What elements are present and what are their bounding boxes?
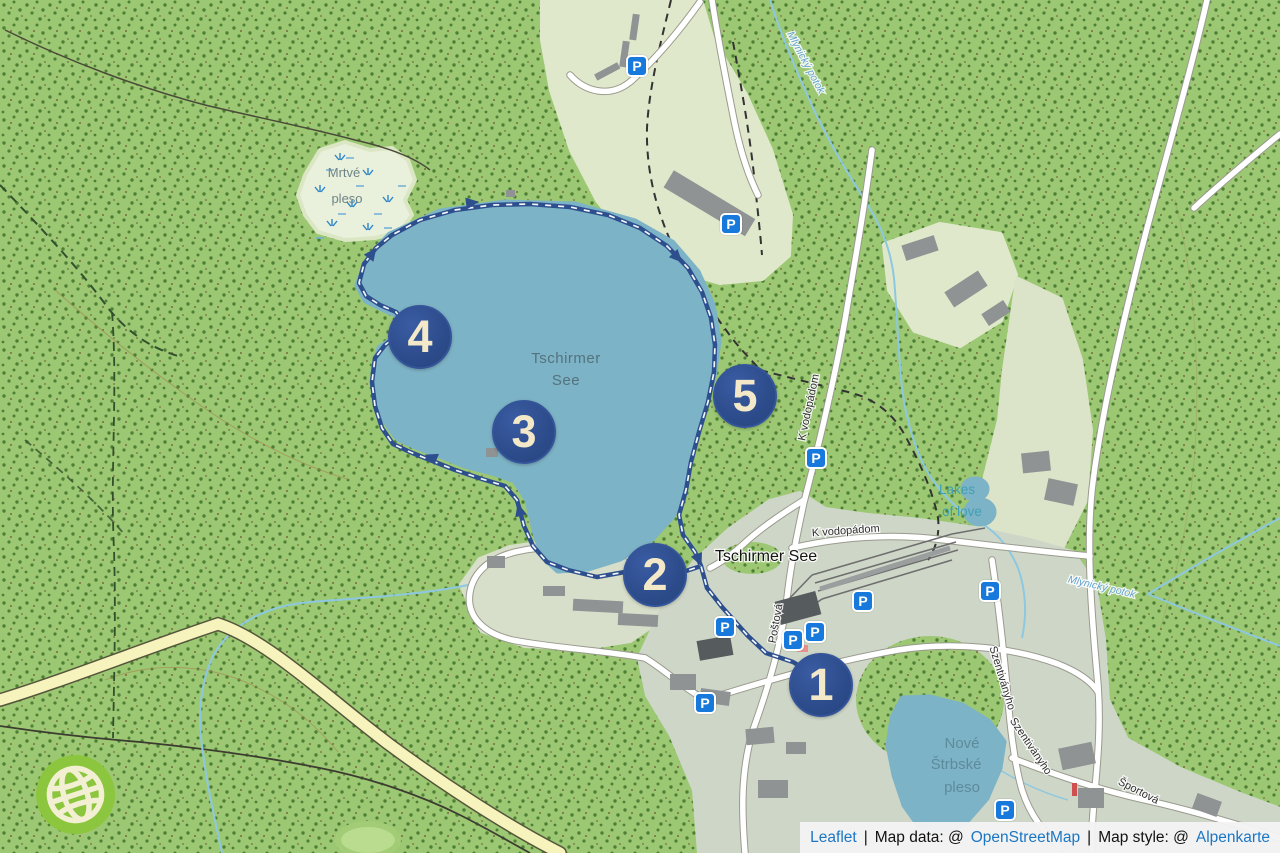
map-data-prefix: Map data: @ <box>875 829 964 847</box>
lake-label-nove: Nové <box>944 735 979 752</box>
osm-link[interactable]: OpenStreetMap <box>971 829 1080 847</box>
route-marker-3[interactable]: 3 <box>492 400 556 464</box>
leaflet-link[interactable]: Leaflet <box>810 829 857 847</box>
route-marker-1[interactable]: 1 <box>789 653 853 717</box>
town-label: Tschirmer See <box>715 548 817 565</box>
lake-label: See <box>552 372 580 389</box>
alpenkarte-globe-logo <box>36 755 115 834</box>
route-marker-2[interactable]: 2 <box>623 543 687 607</box>
alpenkarte-link[interactable]: Alpenkarte <box>1196 829 1270 847</box>
ponds-label: Lakes <box>939 482 975 497</box>
map-style-prefix: Map style: @ <box>1098 829 1189 847</box>
route-marker-5[interactable]: 5 <box>713 364 777 428</box>
wetland-label: Mrtvé <box>328 165 361 180</box>
ponds-label: of love <box>942 504 982 519</box>
lake-label: Tschirmer <box>531 350 601 367</box>
attribution-separator: | <box>864 829 868 847</box>
route-marker-4[interactable]: 4 <box>388 305 452 369</box>
map-canvas: Tschirmer See Mrtvé pleso Nové Štrbské p… <box>0 0 1280 853</box>
map-viewport[interactable]: Tschirmer See Mrtvé pleso Nové Štrbské p… <box>0 0 1280 853</box>
attribution-bar: Leaflet | Map data: @ OpenStreetMap | Ma… <box>800 822 1280 853</box>
lake-label-nove: Štrbské <box>931 756 982 773</box>
wetland-label: pleso <box>331 191 362 206</box>
attribution-separator: | <box>1087 829 1091 847</box>
lake-label-nove: pleso <box>944 779 980 796</box>
